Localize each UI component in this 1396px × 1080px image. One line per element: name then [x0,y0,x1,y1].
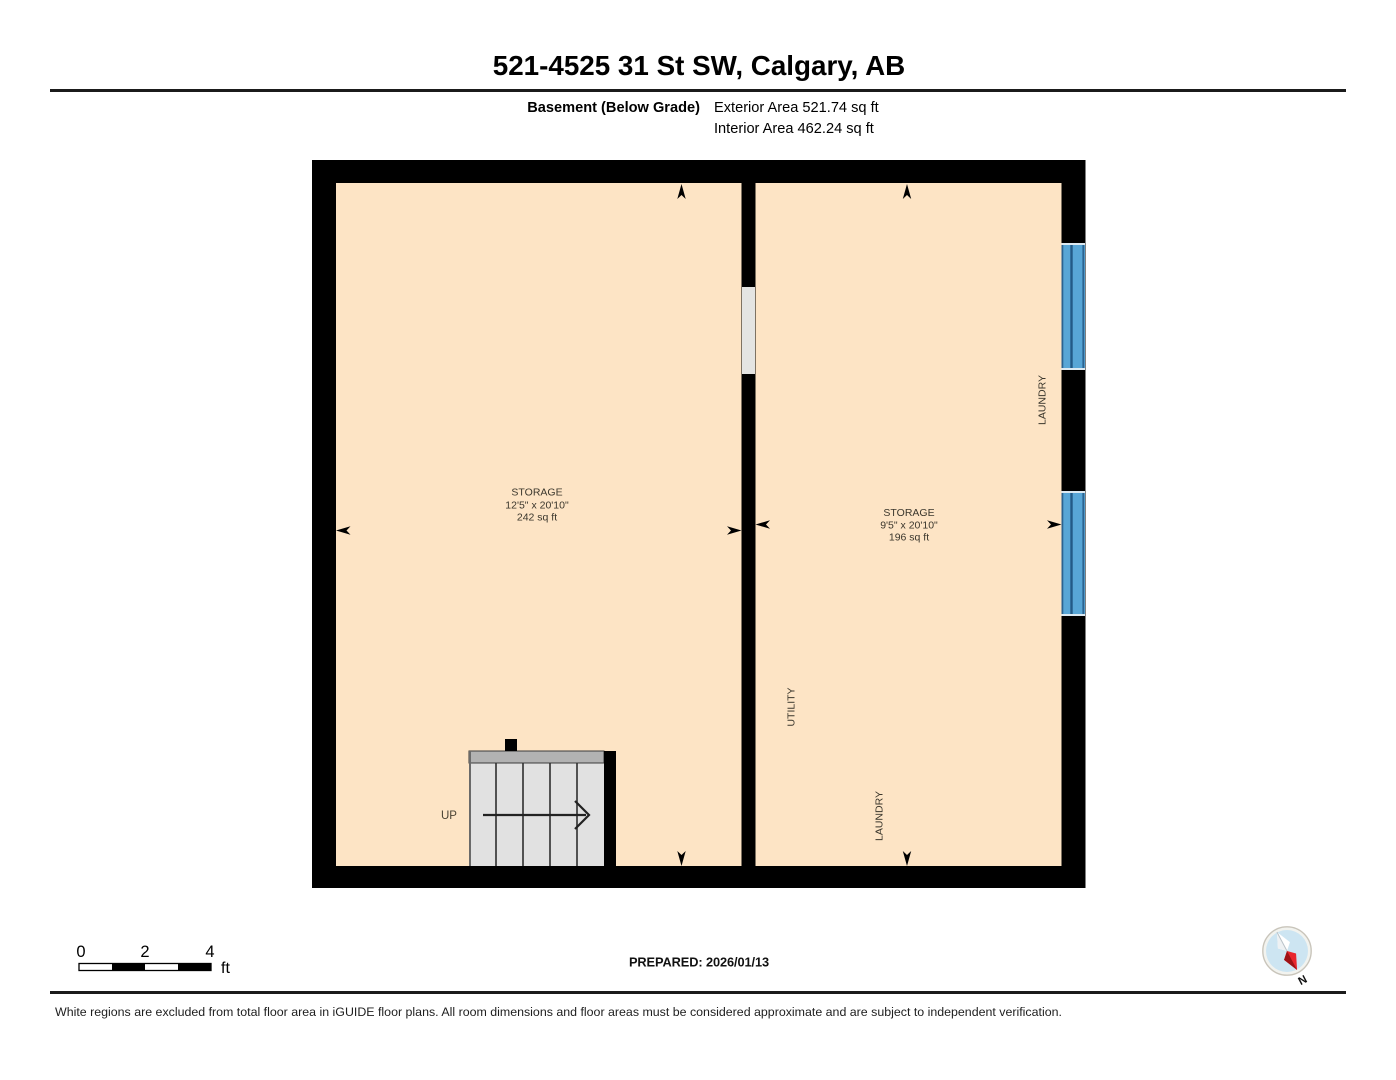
svg-text:12'5" x 20'10": 12'5" x 20'10" [505,500,569,512]
svg-text:N: N [1296,972,1309,986]
svg-text:LAUNDRY: LAUNDRY [874,791,886,841]
svg-text:196 sq ft: 196 sq ft [889,532,929,544]
svg-text:LAUNDRY: LAUNDRY [1037,375,1049,425]
svg-text:UP: UP [441,810,457,822]
svg-text:ft: ft [221,960,230,977]
svg-text:242 sq ft: 242 sq ft [517,512,557,524]
svg-text:2: 2 [140,943,149,961]
svg-text:STORAGE: STORAGE [511,487,562,499]
svg-text:STORAGE: STORAGE [883,507,934,519]
svg-text:4: 4 [205,943,214,961]
svg-text:9'5" x 20'10": 9'5" x 20'10" [880,520,938,532]
svg-text:UTILITY: UTILITY [786,687,798,726]
svg-text:0: 0 [76,943,85,961]
svg-text:PREPARED: 2026/01/13: PREPARED: 2026/01/13 [629,955,769,970]
